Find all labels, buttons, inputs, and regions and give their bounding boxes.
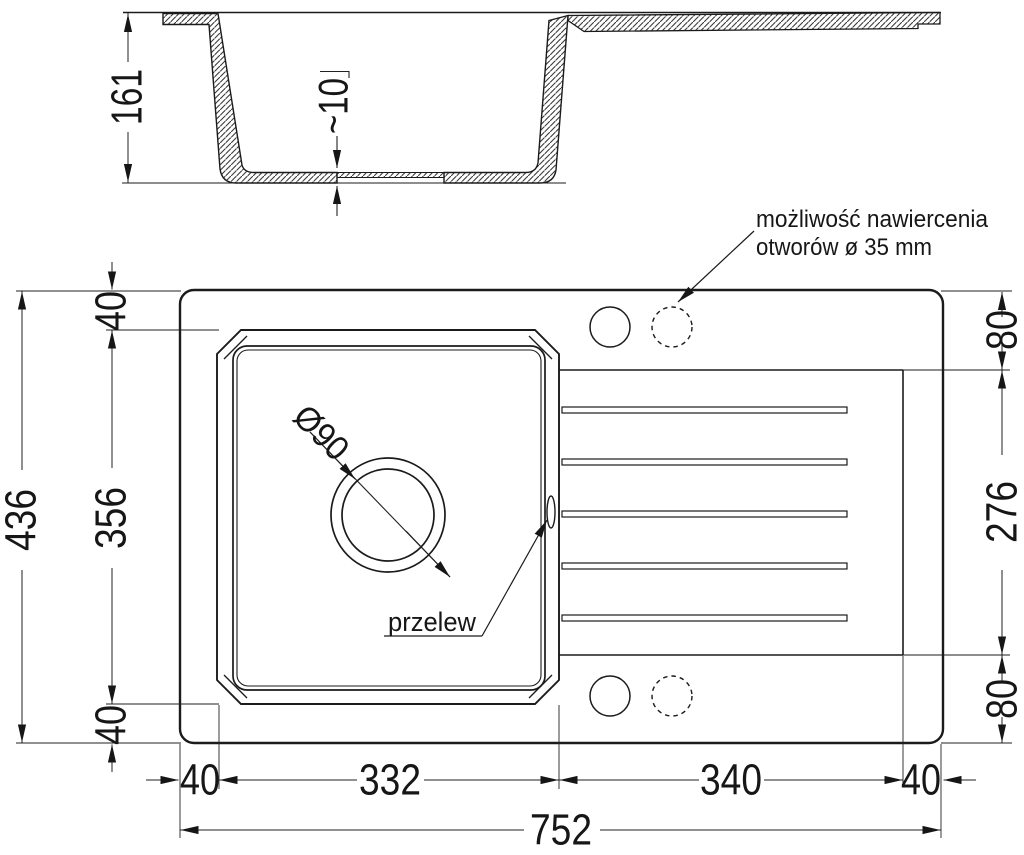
dim-40-left-label: 40 bbox=[180, 756, 220, 805]
dim-40-bottom-label: 40 bbox=[87, 705, 136, 745]
top-view bbox=[180, 290, 1010, 743]
dim-161-label: 161 bbox=[103, 69, 152, 125]
dim-80-top-label: 80 bbox=[978, 310, 1024, 350]
drill-note-line2: otworów ø 35 mm bbox=[756, 234, 932, 261]
optional-tap-hole-bottom bbox=[652, 676, 692, 716]
tap-hole-bottom bbox=[590, 676, 630, 716]
dim-752-label: 752 bbox=[530, 806, 592, 855]
overflow-label: przelew bbox=[388, 607, 476, 637]
dim-340-label: 340 bbox=[700, 756, 762, 805]
drainer-groove bbox=[562, 407, 847, 413]
bowl-outline bbox=[217, 330, 559, 704]
dim-80-bottom-label: 80 bbox=[978, 679, 1024, 719]
dim-276-label: 276 bbox=[978, 481, 1024, 543]
bowl-corner-facet bbox=[224, 336, 247, 359]
section-view bbox=[122, 13, 941, 184]
drain-inner-circle bbox=[342, 469, 434, 561]
bowl-corner-facet bbox=[529, 336, 552, 359]
drainer-groove bbox=[562, 615, 847, 621]
drill-note bbox=[678, 231, 754, 302]
dim-40-top-label: 40 bbox=[87, 291, 136, 331]
overflow-slot bbox=[547, 496, 555, 528]
drill-note-line1: możliwość nawiercenia bbox=[756, 206, 989, 233]
dim-436-label: 436 bbox=[0, 489, 46, 551]
sink-technical-drawing: 161 ~10 bbox=[0, 0, 1024, 855]
dim-332-label: 332 bbox=[359, 756, 421, 805]
section-drainer-wedge bbox=[568, 13, 940, 32]
dim-10-label: ~10 bbox=[310, 78, 357, 134]
drill-note-leader bbox=[678, 231, 754, 302]
tap-hole-top bbox=[590, 307, 630, 347]
drawing-svg: 161 ~10 bbox=[0, 0, 1024, 855]
section-right-wall bbox=[444, 16, 568, 184]
drain-diameter-label: Ø90 bbox=[286, 398, 357, 469]
dim-40-right-label: 40 bbox=[901, 756, 941, 805]
dim-356-label: 356 bbox=[87, 487, 136, 549]
section-drain-recess bbox=[337, 173, 444, 178]
drainer-groove bbox=[562, 563, 847, 569]
drainer-groove bbox=[562, 511, 847, 517]
optional-tap-hole-top bbox=[652, 307, 692, 347]
bowl-corner-facet bbox=[224, 675, 247, 698]
drainer-groove bbox=[562, 459, 847, 465]
